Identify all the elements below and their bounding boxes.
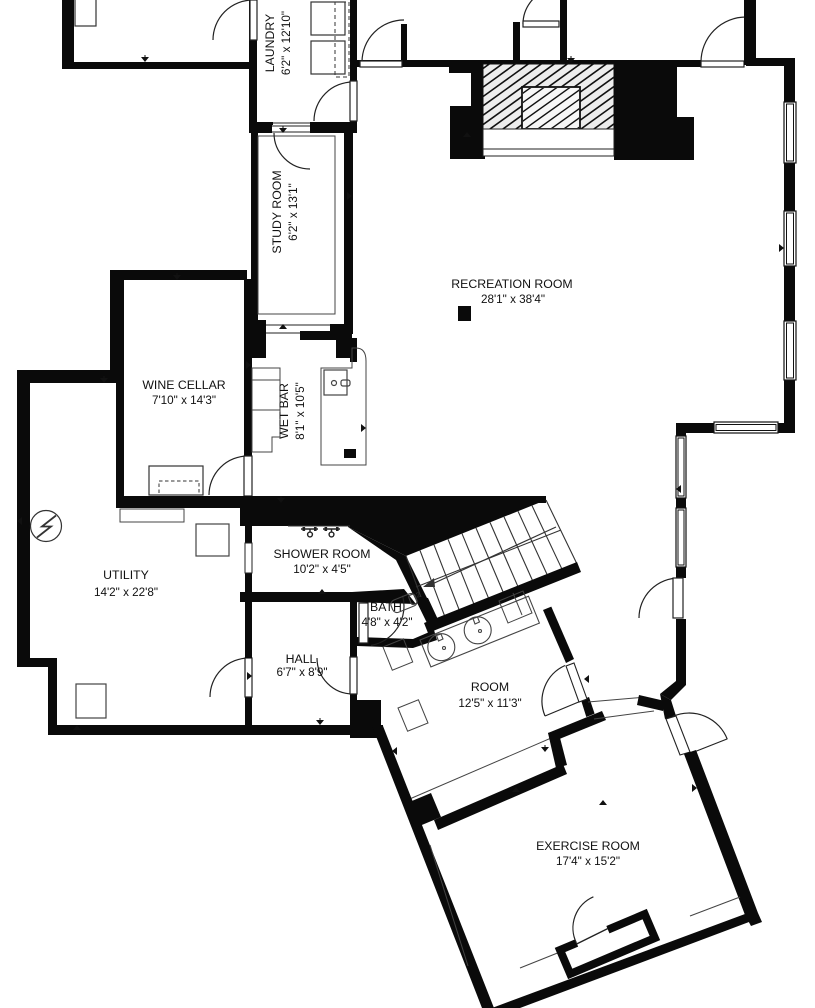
- svg-text:17'4" x 15'2": 17'4" x 15'2": [556, 855, 620, 868]
- svg-text:6'2" x 13'1": 6'2" x 13'1": [287, 183, 300, 241]
- svg-text:LAUNDRY: LAUNDRY: [263, 14, 277, 73]
- svg-text:8'1" x 10'5": 8'1" x 10'5": [294, 382, 307, 440]
- svg-text:28'1" x 38'4": 28'1" x 38'4": [481, 293, 545, 306]
- svg-text:ROOM: ROOM: [471, 680, 509, 694]
- svg-text:6'2" x 12'10": 6'2" x 12'10": [280, 11, 293, 75]
- svg-text:10'2" x 4'5": 10'2" x 4'5": [293, 563, 351, 576]
- svg-text:4'8" x 4'2": 4'8" x 4'2": [361, 616, 412, 629]
- svg-text:RECREATION ROOM: RECREATION ROOM: [451, 277, 572, 291]
- svg-text:HALL: HALL: [286, 652, 317, 666]
- svg-text:WET BAR: WET BAR: [277, 383, 291, 439]
- svg-text:WINE CELLAR: WINE CELLAR: [142, 378, 225, 392]
- svg-text:6'7" x 8'9": 6'7" x 8'9": [276, 666, 327, 679]
- svg-text:SHOWER ROOM: SHOWER ROOM: [273, 547, 370, 561]
- svg-text:7'10" x 14'3": 7'10" x 14'3": [152, 394, 216, 407]
- svg-text:14'2" x 22'8": 14'2" x 22'8": [94, 586, 158, 599]
- svg-text:STUDY ROOM: STUDY ROOM: [270, 170, 284, 253]
- svg-text:EXERCISE ROOM: EXERCISE ROOM: [536, 839, 640, 853]
- svg-text:UTILITY: UTILITY: [103, 568, 149, 582]
- svg-text:12'5" x 11'3": 12'5" x 11'3": [458, 697, 521, 710]
- svg-text:BATH: BATH: [370, 600, 402, 614]
